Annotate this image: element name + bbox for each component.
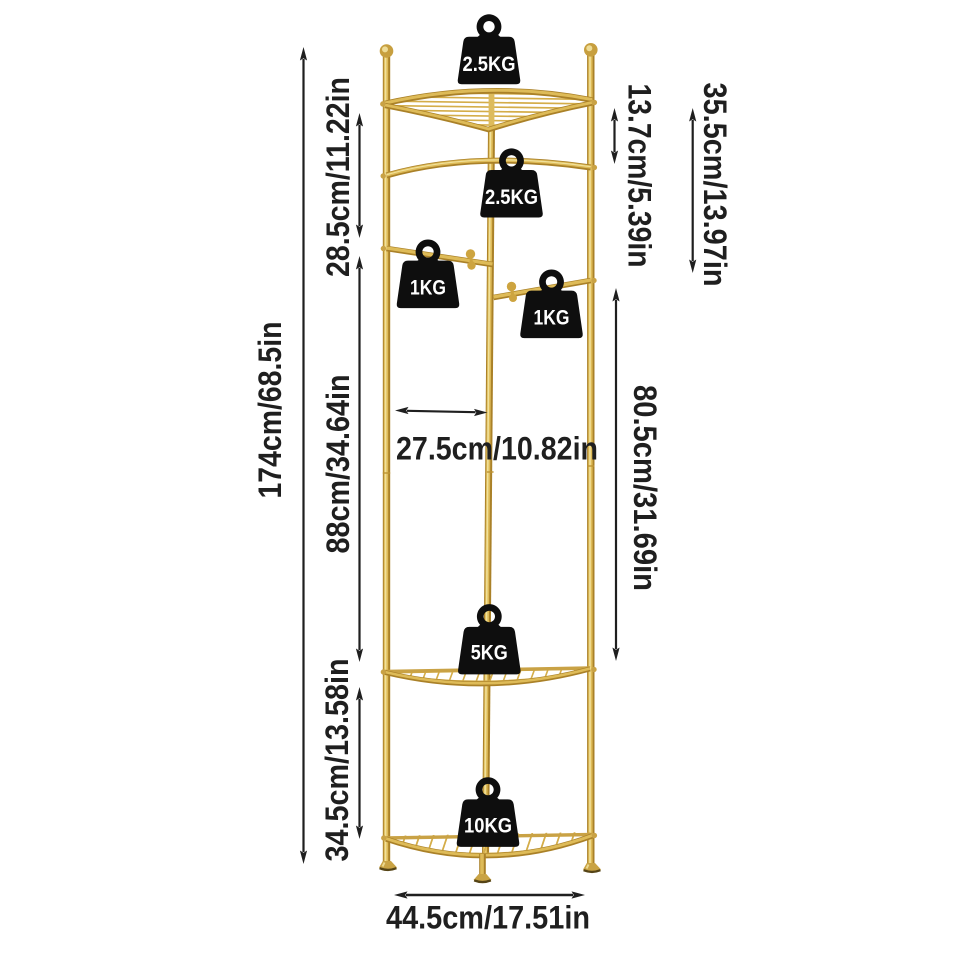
svg-text:34.5cm/13.58in: 34.5cm/13.58in: [319, 659, 355, 862]
svg-text:88cm/34.64in: 88cm/34.64in: [320, 375, 356, 554]
svg-text:28.5cm/11.22in: 28.5cm/11.22in: [320, 77, 356, 277]
svg-text:174cm/68.5in: 174cm/68.5in: [252, 322, 288, 499]
svg-text:80.5cm/31.69in: 80.5cm/31.69in: [627, 385, 663, 591]
svg-text:10KG: 10KG: [464, 815, 512, 838]
svg-text:5KG: 5KG: [471, 642, 508, 665]
svg-text:35.5cm/13.97in: 35.5cm/13.97in: [697, 83, 733, 287]
svg-text:1KG: 1KG: [410, 277, 446, 300]
svg-text:13.7cm/5.39in: 13.7cm/5.39in: [622, 84, 658, 268]
svg-text:44.5cm/17.51in: 44.5cm/17.51in: [386, 900, 590, 936]
svg-text:27.5cm/10.82in: 27.5cm/10.82in: [396, 431, 598, 467]
svg-text:2.5KG: 2.5KG: [463, 53, 516, 76]
svg-text:2.5KG: 2.5KG: [485, 186, 538, 209]
svg-text:1KG: 1KG: [534, 307, 570, 330]
